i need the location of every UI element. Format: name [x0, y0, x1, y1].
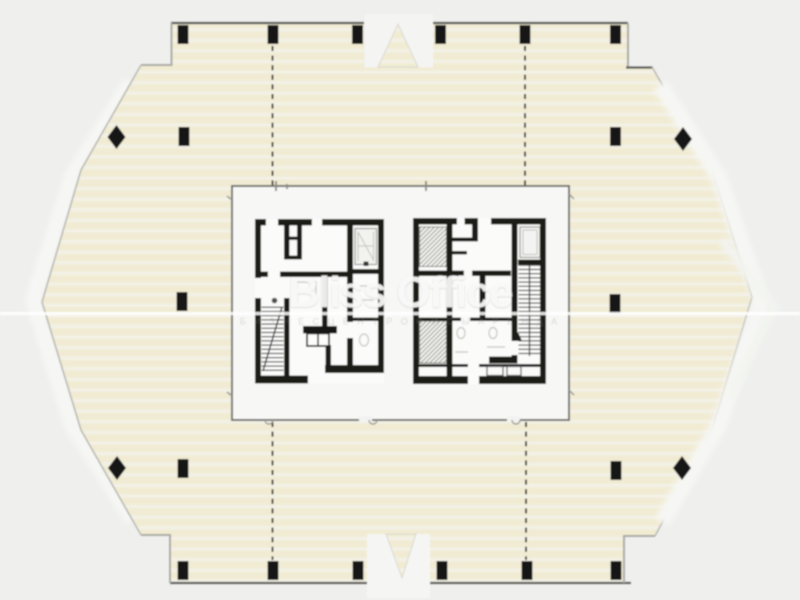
svg-text:Bliss Office: Bliss Office [288, 268, 512, 317]
svg-text:Б И З Н Е С Ц Е Н Т Р О Ф: Б И З Н Е С Ц Е Н Т Р О Ф И С Ы А Р Е Н … [240, 317, 560, 327]
